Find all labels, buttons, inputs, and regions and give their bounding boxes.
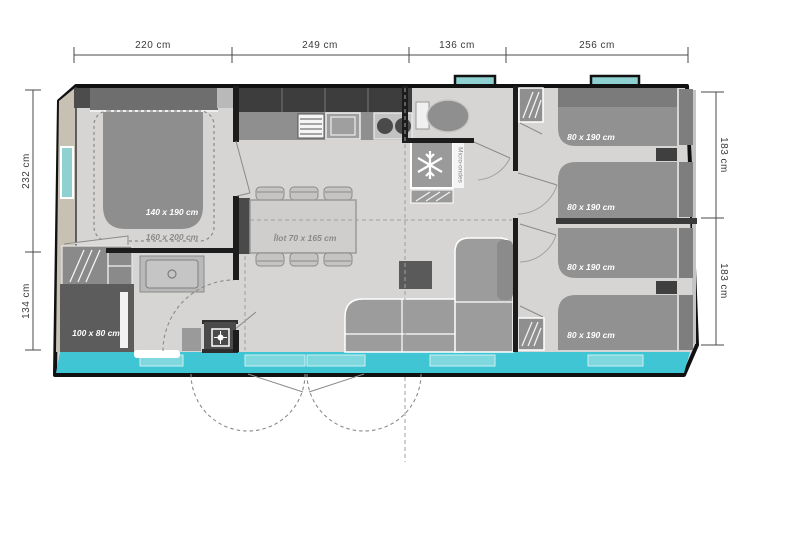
- wall-bedrooms-left-bottom: [513, 218, 518, 352]
- dim-top-4: 256 cm: [579, 40, 615, 51]
- dim-right-1: 183 cm: [718, 137, 729, 173]
- dining-island: Îlot 70 x 165 cm: [250, 187, 356, 266]
- left-window: [61, 147, 73, 198]
- wall-wc-left: [402, 86, 408, 143]
- toilet-icon: [416, 100, 469, 132]
- dim-top-3: 136 cm: [439, 40, 475, 51]
- nightstand: [74, 88, 91, 108]
- cabinet: [182, 328, 201, 351]
- wall-wc-bottom: [402, 138, 474, 143]
- wall-bathroom-right-2: [233, 330, 239, 352]
- dim-left-1: 232 cm: [21, 153, 32, 189]
- dimension-right: 183 cm 183 cm: [701, 92, 729, 345]
- bed-label: 80 x 190 cm: [567, 202, 615, 212]
- bed-label: 80 x 190 cm: [567, 132, 615, 142]
- sofa: [345, 299, 463, 352]
- floorplan-canvas: 220 cm 249 cm 136 cm 256 cm 232 cm 134 c…: [0, 0, 800, 533]
- bed-max-label: 160 x 200 cm: [146, 232, 199, 242]
- shower-label: 100 x 80 cm: [72, 328, 120, 338]
- chairs-bottom: [256, 253, 352, 266]
- pillow: [679, 162, 693, 217]
- dish-rack-icon: [298, 114, 324, 138]
- shelf: [217, 88, 233, 108]
- double-bed-label: 140 x 190 cm: [146, 207, 199, 217]
- single-bed-4: [558, 295, 677, 350]
- dim-top-1: 220 cm: [135, 40, 171, 51]
- pillow: [679, 295, 693, 350]
- wall-bathroom-top: [106, 248, 239, 253]
- sofa-armrest: [497, 240, 513, 300]
- wall-master-right-top: [233, 86, 239, 142]
- bed-label: 80 x 190 cm: [567, 330, 615, 340]
- dim-left-2: 134 cm: [21, 283, 32, 319]
- pillow: [679, 228, 693, 278]
- sink-icon: [326, 113, 360, 139]
- dimension-left: 232 cm 134 cm: [21, 90, 41, 350]
- shower-screen: [120, 292, 128, 348]
- wall-bathroom-right-1: [233, 254, 239, 280]
- bed-label: 80 x 190 cm: [567, 262, 615, 272]
- island-top: [250, 200, 356, 253]
- dim-top-2: 249 cm: [302, 40, 338, 51]
- nightstand: [656, 148, 677, 161]
- coffee-table: [399, 261, 432, 289]
- floorplan: 220 cm 249 cm 136 cm 256 cm 232 cm 134 c…: [0, 0, 800, 533]
- microwave-label: Micro-ondes: [457, 147, 464, 184]
- door-handle: [134, 350, 180, 358]
- dim-right-2: 183 cm: [718, 263, 729, 299]
- wall-bedrooms-left-top: [513, 86, 518, 171]
- dimension-top: 220 cm 249 cm 136 cm 256 cm: [74, 40, 688, 63]
- nightstand: [656, 281, 677, 294]
- headboard: [90, 88, 218, 110]
- pillow: [679, 89, 693, 145]
- wardrobe-icon: [62, 236, 132, 286]
- chairs-top: [256, 187, 352, 200]
- front-door-swing: [191, 374, 421, 462]
- shelf-below-fridge: [411, 190, 453, 203]
- wc-room: [416, 100, 469, 132]
- wall-bedrooms-middle: [556, 218, 697, 224]
- wall-master-right-bottom: [233, 196, 239, 254]
- washbasin-icon: [140, 256, 204, 292]
- island-label: Îlot 70 x 165 cm: [274, 232, 337, 243]
